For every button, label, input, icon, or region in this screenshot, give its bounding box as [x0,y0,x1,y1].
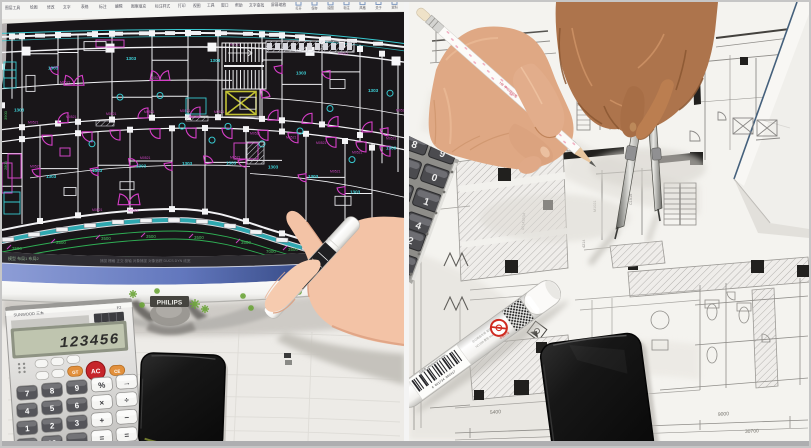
svg-text:M0521: M0521 [106,112,116,116]
svg-text:C1515: C1515 [629,194,633,205]
svg-text:资料: 资料 [391,5,398,10]
svg-text:1303: 1303 [268,164,279,169]
svg-text:图案填充: 图案填充 [131,4,146,9]
svg-text:2800: 2800 [3,160,8,170]
svg-text:M0521: M0521 [140,156,150,160]
svg-text:M0521: M0521 [386,136,396,140]
svg-text:编辑: 编辑 [115,4,123,9]
svg-text:1303: 1303 [210,58,221,63]
svg-text:1303: 1303 [14,107,25,112]
svg-text:1303: 1303 [46,174,57,179]
svg-text:视图: 视图 [193,3,201,8]
svg-text:4214: 4214 [582,240,586,248]
svg-text:30700: 30700 [745,428,759,435]
svg-text:修改: 修改 [47,4,55,9]
svg-text:%: % [98,381,106,390]
svg-text:1303: 1303 [368,88,379,93]
svg-text:1303: 1303 [226,160,237,165]
svg-text:打开: 打开 [295,5,302,10]
svg-text:3500: 3500 [12,246,22,251]
svg-text:M0521: M0521 [250,131,260,135]
svg-text:3500: 3500 [194,235,204,240]
svg-text:帮助: 帮助 [235,2,243,7]
svg-text:M0521: M0521 [92,208,102,212]
svg-text:标注: 标注 [343,5,350,10]
svg-text:风格: 风格 [359,5,366,10]
svg-text:捕捉 栅格 正交 极轴 对象捕捉 对象追踪 DUCS DYN: 捕捉 栅格 正交 极轴 对象捕捉 对象追踪 DUCS DYN 线宽 [100,258,191,263]
svg-text:M0521: M0521 [352,151,362,155]
svg-text:绘图: 绘图 [30,5,38,10]
svg-text:M0521: M0521 [28,121,38,125]
svg-text:1303: 1303 [48,66,59,71]
svg-text:PHILIPS: PHILIPS [157,300,183,307]
svg-text:文字查找: 文字查找 [249,2,264,7]
svg-text:标注: 标注 [99,4,107,9]
svg-text:3900: 3900 [3,110,8,120]
svg-text:M0521: M0521 [316,141,326,145]
svg-text:1303: 1303 [136,163,147,168]
svg-text:M0521: M0521 [330,170,340,174]
svg-text:关于: 关于 [375,5,382,10]
svg-text:3500: 3500 [288,247,298,252]
svg-text:表格: 表格 [81,4,89,9]
svg-text:M0521: M0521 [150,76,160,80]
svg-text:工具: 工具 [207,3,215,8]
svg-text:5400: 5400 [490,409,502,416]
svg-text:3500: 3500 [146,234,156,239]
svg-text:M0521: M0521 [60,80,70,84]
svg-text:1303: 1303 [308,174,319,179]
svg-text:模型 布局1 布局2: 模型 布局1 布局2 [8,255,39,261]
svg-text:标注样式: 标注样式 [155,3,170,8]
svg-text:→: → [122,378,131,388]
svg-text:M0521: M0521 [214,110,224,114]
svg-text:打印: 打印 [178,3,186,8]
svg-text:窗口: 窗口 [221,3,229,8]
svg-text:M0521: M0521 [180,109,190,113]
svg-text:屏幕缩放: 屏幕缩放 [271,2,286,7]
svg-text:9000: 9000 [718,411,730,418]
svg-text:M0521: M0521 [128,209,138,213]
svg-text:M0521: M0521 [30,164,40,168]
svg-text:1303: 1303 [182,161,193,166]
svg-text:1303: 1303 [126,56,137,61]
svg-text:图层工具: 图层工具 [5,5,20,10]
svg-text:文字: 文字 [63,4,71,9]
svg-text:M0521: M0521 [286,136,296,140]
svg-text:GT: GT [72,370,79,375]
svg-text:1303: 1303 [386,145,397,150]
svg-text:3500: 3500 [101,236,111,241]
svg-text:1303: 1303 [92,168,103,173]
svg-text:M0521: M0521 [66,115,76,119]
svg-text:3500: 3500 [56,240,66,245]
svg-text:保存: 保存 [311,5,318,10]
svg-text:1303: 1303 [350,189,361,194]
svg-text:AC: AC [91,368,101,376]
svg-text:1303: 1303 [296,71,307,76]
svg-text:CE: CE [114,369,121,374]
svg-text:绘图: 绘图 [327,5,333,10]
svg-text:3500: 3500 [241,240,251,245]
svg-text:7000: 7000 [266,249,276,254]
svg-text:M0521: M0521 [144,110,154,114]
